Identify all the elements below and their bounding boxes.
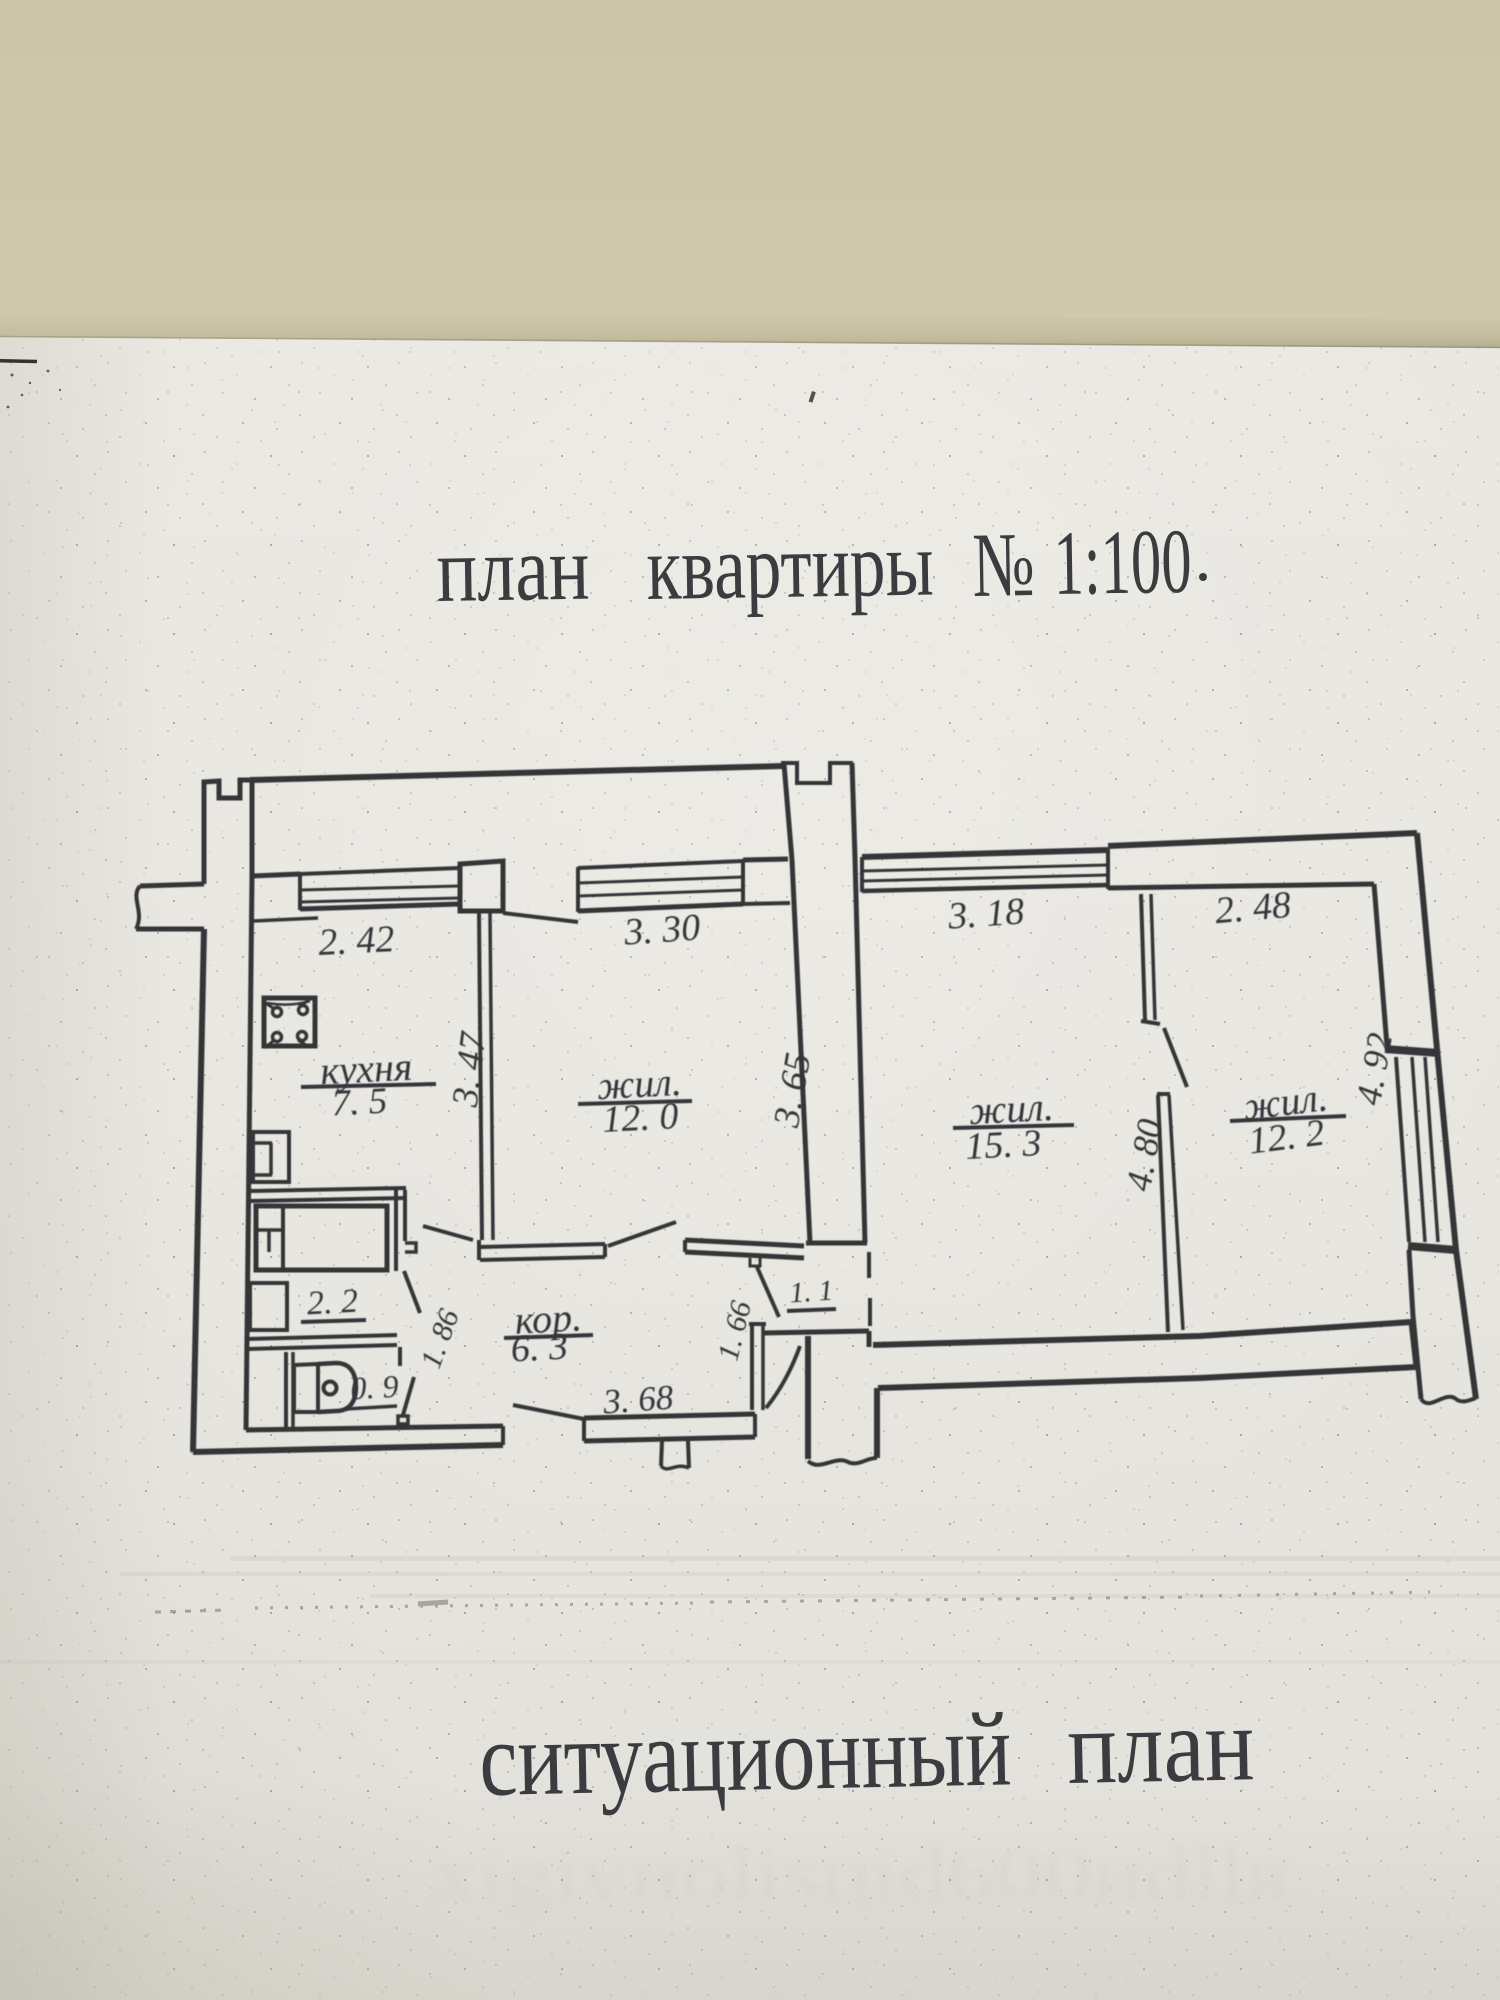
svg-text:1. 1: 1. 1 <box>789 1275 835 1310</box>
svg-text:план: план <box>1066 1685 1255 1806</box>
svg-text:0. 9: 0. 9 <box>350 1368 400 1406</box>
svg-text:3. 18: 3. 18 <box>946 890 1026 937</box>
svg-text:2. 2: 2. 2 <box>306 1283 359 1323</box>
svg-text:1. 86: 1. 86 <box>414 1305 466 1373</box>
svg-text:3. 30: 3. 30 <box>622 906 702 953</box>
svg-text:2. 48: 2. 48 <box>1213 884 1292 932</box>
svg-text:3. 47: 3. 47 <box>445 1029 495 1110</box>
svg-text:4. 92: 4. 92 <box>1348 1030 1400 1108</box>
svg-text:2. 42: 2. 42 <box>317 918 395 964</box>
svg-text:3. 68: 3. 68 <box>601 1378 675 1422</box>
svg-text:6. 3: 6. 3 <box>510 1326 569 1371</box>
svg-text:3. 65: 3. 65 <box>766 1050 819 1131</box>
svg-text:ситуационный: ситуационный <box>478 1690 1012 1818</box>
